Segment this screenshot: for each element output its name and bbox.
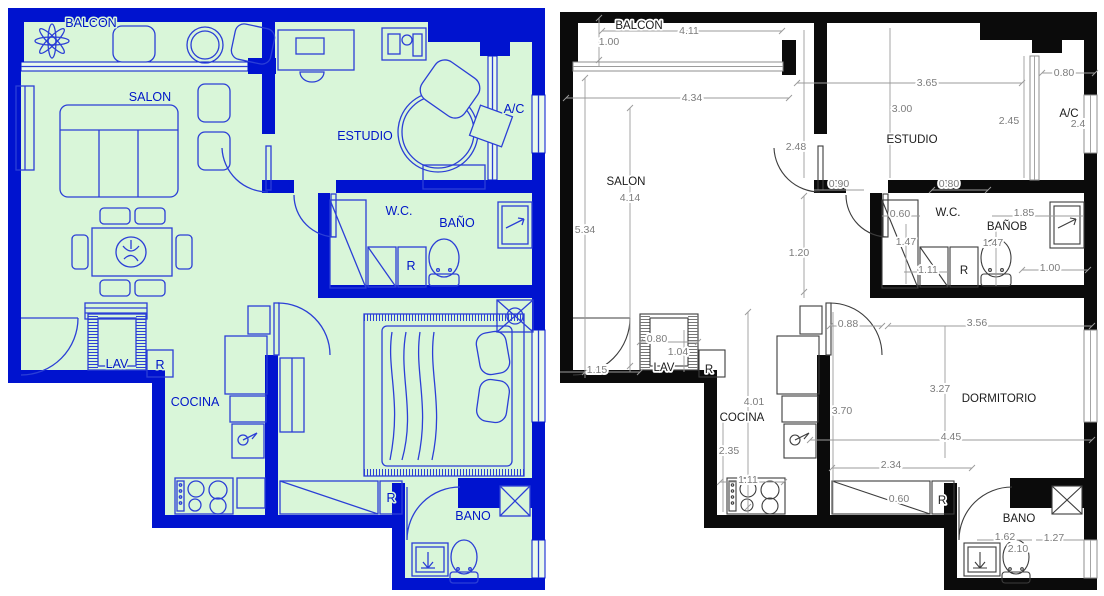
dim-wc-width: 1.11	[918, 264, 938, 276]
label-balcon: BALCON	[615, 20, 662, 32]
walls	[560, 12, 1097, 590]
dim-balcon-width: 4.11	[679, 25, 699, 37]
sink	[964, 543, 1000, 576]
label-ac: A/C	[504, 102, 525, 116]
dim-estudio-window: 2.45	[999, 115, 1020, 127]
dim-closet-width: 2.34	[881, 459, 902, 471]
label-r: R	[960, 265, 968, 277]
label-dormitorio: DORMITORIO	[962, 393, 1037, 405]
floorplan-page: BALCON SALON ESTUDIO A/C W.C. BAÑO R LAV…	[0, 0, 1104, 596]
dim-closet-depth: 0.60	[889, 493, 910, 505]
label-r: R	[938, 495, 946, 507]
label-r: R	[386, 491, 395, 505]
label-estudio: ESTUDIO	[886, 134, 937, 146]
dim-estudio-wall: 2.48	[786, 141, 807, 153]
dim-cocina-lower: 2.35	[719, 445, 740, 457]
label-cocina: COCINA	[171, 395, 220, 409]
label-wc: W.C.	[936, 207, 961, 219]
dim-dorm-width: 4.45	[941, 431, 962, 443]
dim-wc-closet: 0.60	[890, 208, 911, 220]
label-lav: LAV	[106, 357, 129, 371]
label-bano2: BANO	[1003, 513, 1036, 525]
dim-bano2-width: 1.62	[995, 531, 1016, 543]
dim-bano-window: 1.00	[1040, 262, 1061, 274]
floorplan-left: BALCON SALON ESTUDIO A/C W.C. BAÑO R LAV…	[0, 0, 552, 596]
dim-lav-door: 0.80	[647, 333, 668, 345]
dim-hall: 1.20	[789, 247, 810, 259]
label-estudio: ESTUDIO	[337, 129, 393, 143]
fridge	[777, 336, 819, 394]
room-labels: BALCON SALON ESTUDIO A/C W.C. BAÑOB R LA…	[607, 20, 1079, 525]
dim-balcon-depth: 1.00	[599, 36, 620, 48]
label-r: R	[406, 259, 415, 273]
dim-wc-door: 0.80	[939, 178, 960, 190]
label-bano: BAÑO	[439, 216, 475, 230]
label-r: R	[705, 364, 713, 376]
dim-bano2-depth: 1.27	[1044, 532, 1065, 544]
label-wc: W.C.	[385, 204, 412, 218]
label-cocina: COCINA	[720, 412, 765, 424]
pillow	[475, 378, 511, 424]
label-salon: SALON	[607, 176, 646, 188]
label-salon: SALON	[129, 90, 171, 104]
dim-bano-depth: 1.47	[983, 237, 1004, 249]
dim-dorm-door: 0.88	[838, 318, 859, 330]
label-lav: LAV	[654, 362, 675, 374]
dim-estudio-door: 0.90	[829, 178, 850, 190]
dim-entry-door: 1.15	[587, 364, 608, 376]
dim-salon-width: 4.34	[682, 92, 703, 104]
dim-bano-width: 1.85	[1014, 207, 1035, 219]
floorplan-right: 4.11 1.00 4.34 3.65 3.00 2.45 0.80 2.4 2…	[552, 0, 1104, 596]
dim-cocina-depth: 4.01	[744, 396, 765, 408]
dim-dorm-length: 3.27	[930, 383, 951, 395]
dim-stove-width: 1.11	[738, 474, 758, 486]
dim-ac-opening: 0.80	[1054, 67, 1075, 79]
dim-salon-length: 4.14	[620, 192, 641, 204]
label-ac: A/C	[1059, 108, 1078, 120]
dim-estudio-width: 3.65	[917, 77, 938, 89]
label-bano: BAÑOB	[987, 220, 1028, 233]
dim-salon-depth: 5.34	[575, 224, 596, 236]
dim-bano2-inner: 2.10	[1008, 543, 1029, 555]
label-bano2: BANO	[455, 509, 491, 523]
dim-wc-depth: 1.47	[896, 236, 917, 248]
label-balcon: BALCON	[65, 16, 116, 30]
shower	[1050, 202, 1084, 248]
dim-lav-depth: 1.04	[668, 346, 689, 358]
label-r: R	[155, 358, 164, 372]
dim-estudio-depth: 3.00	[892, 103, 913, 115]
dim-dorm-top-width: 3.56	[967, 317, 988, 329]
dim-cocina-wall: 3.70	[832, 405, 853, 417]
